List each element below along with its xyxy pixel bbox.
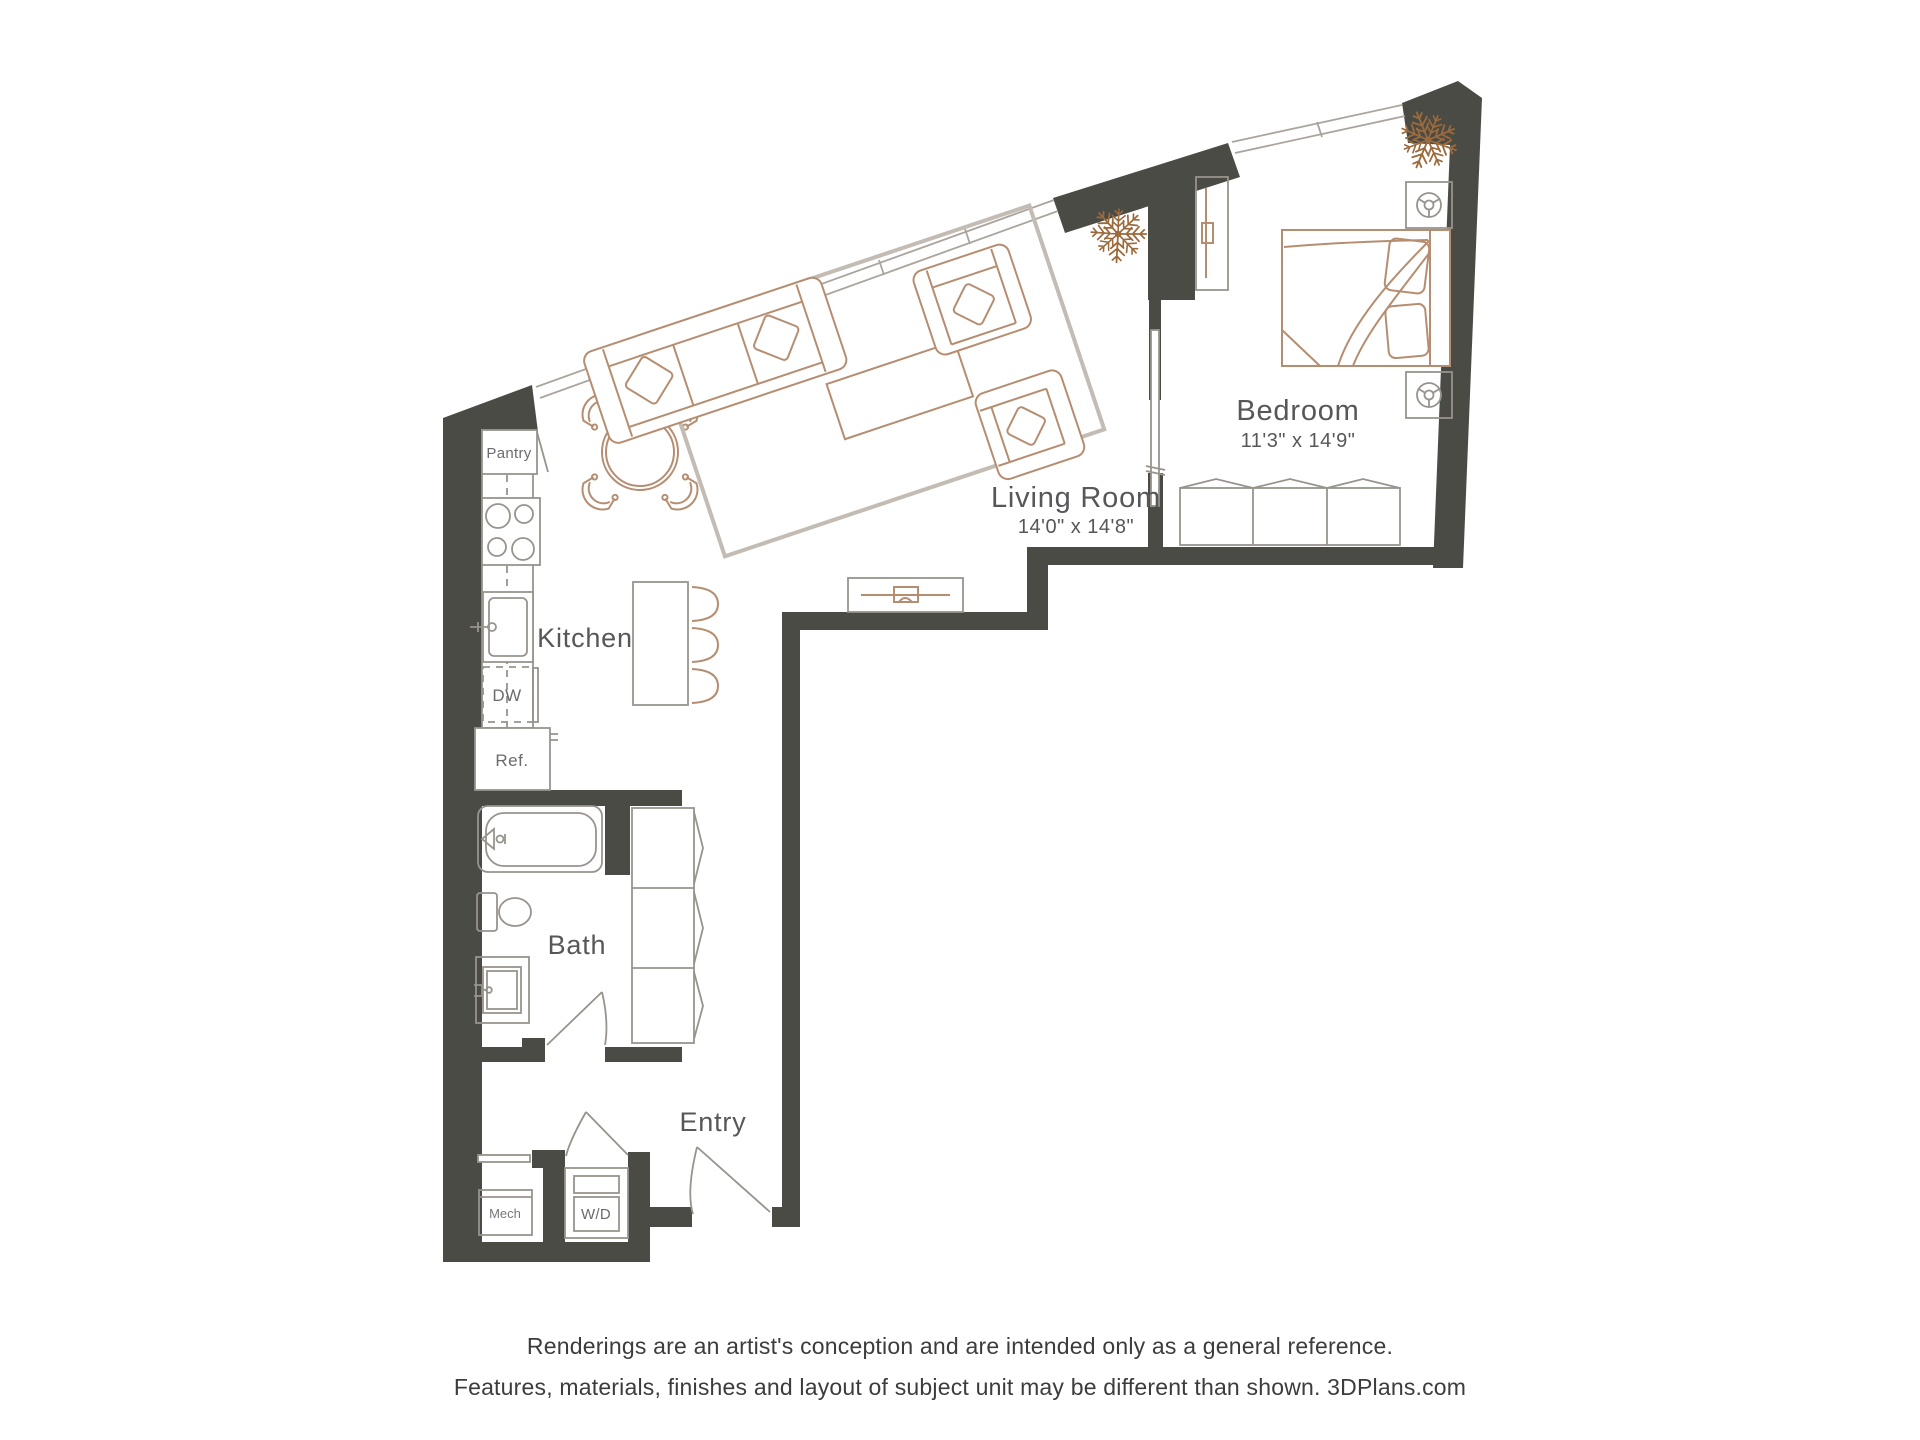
lamp-icon: [1417, 383, 1441, 407]
toilet-icon: [477, 893, 531, 931]
coffee-table-icon: [827, 341, 973, 439]
bed-icon: [1282, 230, 1450, 366]
wall-tub-alcove: [605, 803, 630, 875]
tv-console-icon: [848, 578, 963, 612]
refrigerator-label: Ref.: [495, 751, 528, 770]
bathroom: [474, 806, 703, 1045]
stove-icon: [482, 498, 540, 565]
disclaimer-line-1: Renderings are an artist's conception an…: [0, 1326, 1920, 1367]
linen-closet-icon: [632, 808, 703, 1043]
kitchen: [470, 430, 718, 790]
wall-bath-door-jamb: [522, 1038, 545, 1047]
bedroom-tv-icon: [1196, 177, 1228, 290]
wall-entry-right: [782, 630, 800, 1227]
wall-bath-bottom-left: [443, 1047, 545, 1062]
armchair-icon: [911, 242, 1034, 357]
wall-kitchen-bath-divider: [443, 790, 682, 806]
wall-wd-jamb-left: [555, 1152, 565, 1168]
bedroom-label: Bedroom: [1236, 395, 1359, 427]
lamp-icon: [1417, 193, 1441, 217]
wardrobe-icon: [1180, 479, 1400, 545]
window-run-bedroom: [1232, 105, 1405, 153]
entry-label: Entry: [679, 1107, 746, 1137]
wall-mech-jamb: [532, 1150, 543, 1168]
wall-entry-bottom-stub: [650, 1207, 692, 1227]
wd-label: W/D: [581, 1206, 611, 1223]
floor-plan-page: Bedroom 11'3" x 14'9" Living Room 14'0" …: [0, 0, 1920, 1440]
vanity-sink-icon: [474, 957, 529, 1023]
living-room-dims: 14'0" x 14'8": [1018, 516, 1134, 538]
bath-door-swing: [547, 992, 606, 1045]
disclaimer: Renderings are an artist's conception an…: [0, 1326, 1920, 1408]
bar-stools: [692, 587, 718, 703]
bedroom-dims: 11'3" x 14'9": [1241, 430, 1356, 452]
disclaimer-line-2: Features, materials, finishes and layout…: [0, 1367, 1920, 1408]
bedroom-furniture: [1180, 177, 1452, 545]
wall-divider-stem: [1148, 191, 1195, 300]
washer-dryer-icon: [565, 1168, 628, 1238]
pantry-door: [537, 432, 548, 472]
wall-hall-top: [782, 612, 1048, 630]
mech-door: [478, 1155, 530, 1162]
wd-door-swing: [566, 1112, 628, 1156]
wall-step: [1027, 547, 1048, 630]
kitchen-island: [633, 582, 688, 705]
mech-label: Mech: [489, 1206, 521, 1221]
living-room-label: Living Room: [991, 482, 1161, 514]
bathtub-icon: [478, 806, 602, 872]
kitchen-label: Kitchen: [537, 623, 633, 653]
armchair-icon: [973, 368, 1087, 482]
sofa-icon: [581, 275, 849, 445]
wall-bath-bottom-right: [605, 1047, 682, 1062]
wall-wd-right: [628, 1152, 650, 1262]
floor-plan: Bedroom 11'3" x 14'9" Living Room 14'0" …: [0, 0, 1920, 1440]
wall-bedroom-bottom: [1048, 547, 1455, 565]
dishwasher-label: DW: [492, 686, 521, 705]
wall-between-windows: [1053, 143, 1240, 233]
pantry-label: Pantry: [486, 445, 531, 462]
entry-door-swing: [690, 1147, 770, 1214]
nightstand-icon: [1406, 182, 1452, 228]
bath-label: Bath: [548, 930, 607, 960]
